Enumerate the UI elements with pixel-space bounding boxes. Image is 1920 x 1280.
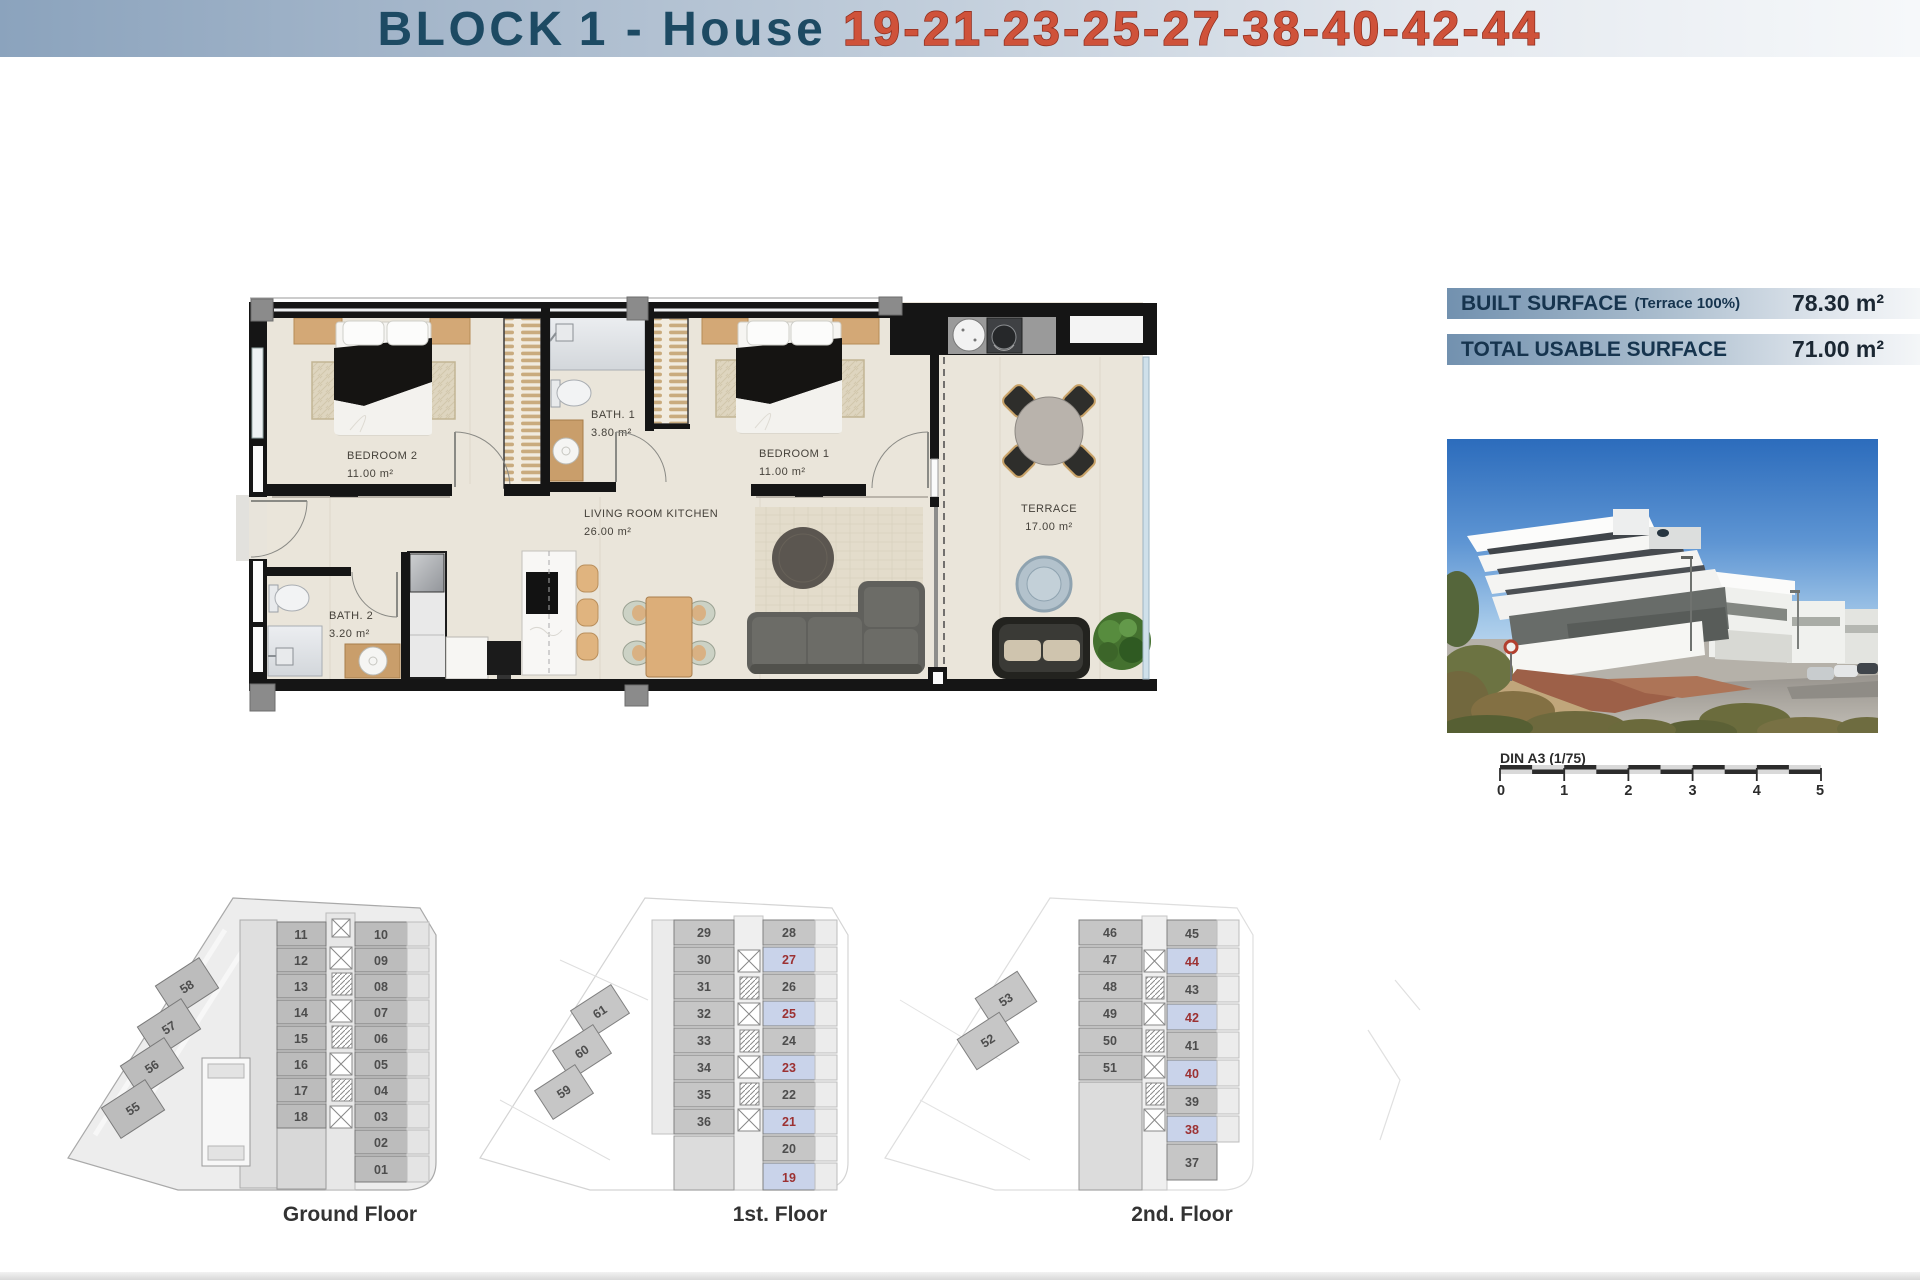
- svg-text:19: 19: [782, 1171, 796, 1185]
- svg-text:26: 26: [782, 980, 796, 994]
- svg-text:32: 32: [697, 1007, 711, 1021]
- svg-text:43: 43: [1185, 983, 1199, 997]
- svg-text:09: 09: [374, 954, 388, 968]
- svg-text:40: 40: [1185, 1067, 1199, 1081]
- svg-text:06: 06: [374, 1032, 388, 1046]
- svg-text:47: 47: [1103, 953, 1117, 967]
- svg-text:14: 14: [294, 1006, 308, 1020]
- svg-text:01: 01: [374, 1163, 388, 1177]
- svg-text:02: 02: [374, 1136, 388, 1150]
- svg-text:03: 03: [374, 1110, 388, 1124]
- svg-text:BATH. 1: BATH. 1: [591, 409, 635, 421]
- svg-text:3.20 m²: 3.20 m²: [329, 628, 370, 640]
- svg-text:27: 27: [782, 953, 796, 967]
- svg-text:LIVING ROOM KITCHEN: LIVING ROOM KITCHEN: [584, 508, 718, 520]
- svg-text:18: 18: [294, 1110, 308, 1124]
- svg-text:5: 5: [1816, 783, 1824, 798]
- svg-text:4: 4: [1753, 783, 1761, 798]
- svg-text:48: 48: [1103, 980, 1117, 994]
- svg-text:04: 04: [374, 1084, 388, 1098]
- svg-text:34: 34: [697, 1061, 711, 1075]
- svg-text:46: 46: [1103, 926, 1117, 940]
- svg-text:BATH. 2: BATH. 2: [329, 610, 373, 622]
- svg-text:36: 36: [697, 1115, 711, 1129]
- svg-text:0: 0: [1497, 783, 1505, 798]
- svg-text:10: 10: [374, 928, 388, 942]
- svg-text:BEDROOM 2: BEDROOM 2: [347, 450, 418, 462]
- svg-text:42: 42: [1185, 1011, 1199, 1025]
- svg-text:26.00 m²: 26.00 m²: [584, 526, 631, 538]
- svg-text:51: 51: [1103, 1061, 1117, 1075]
- svg-text:3: 3: [1689, 783, 1697, 798]
- svg-text:44: 44: [1185, 955, 1199, 969]
- svg-text:1: 1: [1560, 783, 1568, 798]
- svg-text:29: 29: [697, 926, 711, 940]
- svg-text:20: 20: [782, 1142, 796, 1156]
- svg-text:17: 17: [294, 1084, 308, 1098]
- svg-text:11: 11: [294, 928, 307, 942]
- svg-text:24: 24: [782, 1034, 796, 1048]
- svg-text:08: 08: [374, 980, 388, 994]
- svg-text:23: 23: [782, 1061, 796, 1075]
- svg-text:16: 16: [294, 1058, 308, 1072]
- svg-text:39: 39: [1185, 1095, 1199, 1109]
- svg-text:17.00 m²: 17.00 m²: [1025, 521, 1072, 533]
- svg-text:BEDROOM 1: BEDROOM 1: [759, 448, 830, 460]
- svg-text:45: 45: [1185, 927, 1199, 941]
- svg-text:37: 37: [1185, 1156, 1199, 1170]
- svg-text:35: 35: [697, 1088, 711, 1102]
- svg-text:TERRACE: TERRACE: [1021, 503, 1077, 515]
- svg-text:50: 50: [1103, 1034, 1117, 1048]
- svg-text:30: 30: [697, 953, 711, 967]
- svg-text:41: 41: [1185, 1039, 1199, 1053]
- svg-text:22: 22: [782, 1088, 796, 1102]
- svg-text:38: 38: [1185, 1123, 1199, 1137]
- svg-text:05: 05: [374, 1058, 388, 1072]
- svg-text:11.00 m²: 11.00 m²: [759, 466, 806, 478]
- svg-text:21: 21: [782, 1115, 796, 1129]
- svg-text:07: 07: [374, 1006, 388, 1020]
- svg-text:33: 33: [697, 1034, 711, 1048]
- svg-text:15: 15: [294, 1032, 308, 1046]
- svg-text:11.00 m²: 11.00 m²: [347, 468, 394, 480]
- svg-text:2: 2: [1624, 783, 1632, 798]
- svg-text:25: 25: [782, 1007, 796, 1021]
- svg-text:49: 49: [1103, 1007, 1117, 1021]
- svg-text:28: 28: [782, 926, 796, 940]
- svg-text:13: 13: [294, 980, 308, 994]
- svg-text:31: 31: [697, 980, 711, 994]
- svg-text:12: 12: [294, 954, 308, 968]
